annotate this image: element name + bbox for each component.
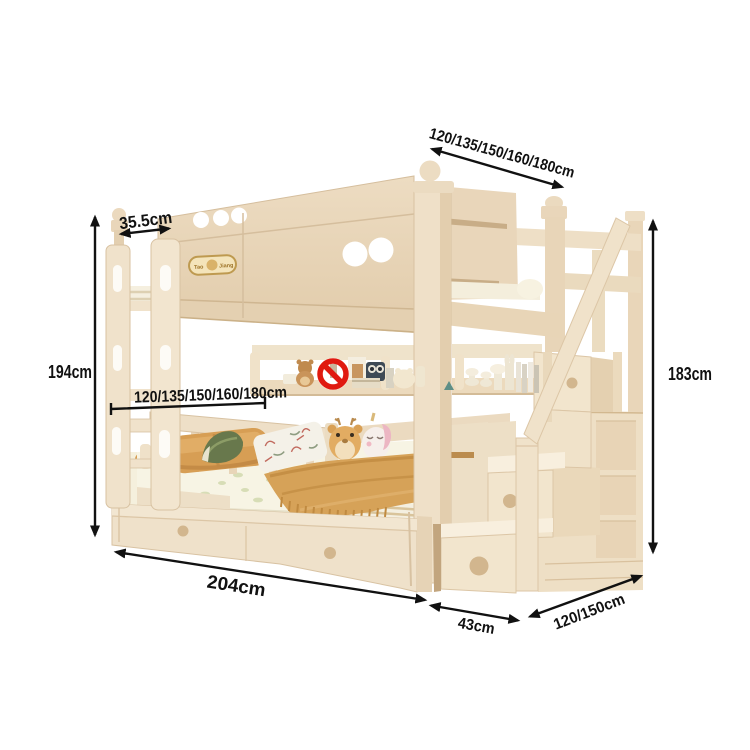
svg-text:Tao: Tao bbox=[194, 264, 204, 271]
svg-text:Jiang: Jiang bbox=[219, 263, 234, 270]
svg-text:183cm: 183cm bbox=[668, 364, 712, 384]
svg-text:194cm: 194cm bbox=[48, 362, 92, 382]
